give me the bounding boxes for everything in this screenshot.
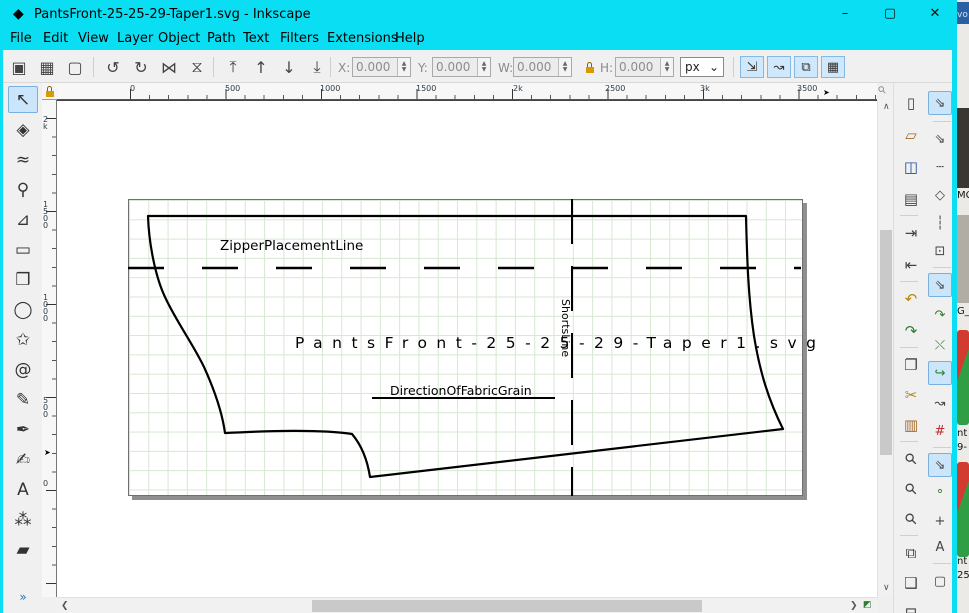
- move-patterns-toggle[interactable]: ▦: [821, 56, 845, 78]
- separator: [93, 57, 94, 77]
- h-spinner[interactable]: ▲▼: [660, 58, 673, 76]
- zoom-page-button[interactable]: ⚲: [893, 501, 928, 536]
- h-ruler-label: 500: [225, 84, 240, 93]
- snap-cusp-nodes-toggle[interactable]: ↪: [928, 361, 952, 385]
- pencil-tool[interactable]: ✎: [8, 386, 38, 413]
- separator: [900, 347, 918, 348]
- h-ruler-label: 2k: [513, 84, 523, 93]
- desktop-icon-label: nt: [957, 556, 967, 567]
- menu-layer[interactable]: Layer: [117, 31, 153, 46]
- v-ruler-label: 1500: [43, 201, 51, 229]
- select-all-button[interactable]: ▣: [6, 55, 32, 79]
- menu-file[interactable]: File: [10, 31, 32, 46]
- inkscape-logo-icon: ◆: [13, 6, 24, 22]
- lower-to-bottom-button[interactable]: ⤓: [304, 55, 330, 79]
- desktop-icon-label: G_: [957, 306, 969, 317]
- desktop-icon-label: MC: [957, 190, 969, 201]
- h-field[interactable]: 0.000 ▲▼: [615, 57, 674, 77]
- separator: [900, 281, 918, 282]
- node-tool[interactable]: ◈: [8, 116, 38, 143]
- snap-bbox-centers-toggle[interactable]: ⊡: [928, 239, 952, 263]
- flip-horizontal-button[interactable]: ⋈: [156, 55, 182, 79]
- h-ruler-label: 0: [130, 84, 135, 93]
- snap-text-baselines-toggle[interactable]: A: [928, 535, 952, 559]
- vertical-scrollbar[interactable]: ∧ ∨: [877, 100, 893, 597]
- w-label: W:: [498, 61, 513, 75]
- desktop-thumbnail: [957, 215, 969, 303]
- horizontal-scrollbar[interactable]: ❮ ❯ ◩: [57, 597, 877, 613]
- h-ruler-label: 1500: [416, 84, 436, 93]
- separator: [933, 267, 951, 268]
- menu-object[interactable]: Object: [158, 31, 200, 46]
- unit-select[interactable]: px ⌄: [680, 57, 724, 77]
- x-label: X:: [338, 61, 350, 75]
- h-label: H:: [600, 61, 613, 75]
- vertical-ruler[interactable]: 2k 1500 1000 500 0 ➤: [42, 100, 57, 597]
- snap-bbox-edges-toggle[interactable]: ┄: [928, 155, 952, 179]
- unlink-clone-button[interactable]: ⊟: [898, 601, 924, 613]
- move-gradients-toggle[interactable]: ⧉: [794, 56, 818, 78]
- minimize-button[interactable]: –: [832, 4, 858, 24]
- menu-path[interactable]: Path: [207, 31, 236, 46]
- menu-edit[interactable]: Edit: [43, 31, 68, 46]
- cursor-position-marker: ➤: [44, 448, 51, 457]
- toolbox-more-button[interactable]: »: [8, 583, 38, 610]
- v-ruler-label: 1000: [43, 294, 51, 322]
- snap-object-centers-toggle[interactable]: °: [928, 483, 952, 507]
- duplicate-button[interactable]: ⧉: [898, 541, 924, 565]
- desktop-folder-icon: [957, 330, 969, 425]
- desktop-icon-label: 9-: [957, 442, 967, 453]
- vertical-scrollbar-thumb[interactable]: [880, 230, 892, 455]
- snap-bbox-edge-midpoints-toggle[interactable]: ┆: [928, 211, 952, 235]
- x-spinner[interactable]: ▲▼: [397, 58, 410, 76]
- desktop-thumbnail: [957, 108, 969, 188]
- rectangle-tool[interactable]: ▭: [8, 236, 38, 263]
- y-spinner[interactable]: ▲▼: [477, 58, 490, 76]
- unit-value: px: [685, 60, 700, 74]
- separator: [733, 57, 734, 77]
- cms-toggle-icon[interactable]: ◩: [863, 600, 872, 610]
- separator: [933, 447, 951, 448]
- snap-enable-toggle[interactable]: ⇘: [928, 91, 952, 115]
- maximize-button[interactable]: ▢: [877, 4, 903, 24]
- w-field[interactable]: 0.000 ▲▼: [513, 57, 572, 77]
- menu-bar: File Edit View Layer Object Path Text Fi…: [0, 28, 955, 50]
- select-all-layers-button[interactable]: ▦: [34, 55, 60, 79]
- raise-button[interactable]: ↑: [248, 55, 274, 79]
- h-ruler-label: 3k: [700, 84, 710, 93]
- tool-controls-bar: ▣ ▦ ▢ ↺ ↻ ⋈ ⧖ ⤒ ↑ ↓ ⤓ X: 0.000 ▲▼ Y: 0.0…: [0, 50, 955, 83]
- paste-button[interactable]: ▥: [898, 413, 924, 437]
- print-document-button[interactable]: ▤: [898, 187, 924, 211]
- eraser-tool[interactable]: ▰: [8, 536, 38, 563]
- text-tool[interactable]: A: [8, 476, 38, 503]
- h-ruler-label: 1000: [320, 84, 340, 93]
- drawing-canvas[interactable]: ZipperPlacementLine PantsFront-25-25-29-…: [57, 100, 877, 597]
- separator: [900, 215, 918, 216]
- y-value: 0.000: [433, 58, 477, 76]
- shorts-line-label[interactable]: ShortsLine: [559, 299, 572, 357]
- horizontal-scrollbar-thumb[interactable]: [312, 600, 702, 612]
- box3d-tool[interactable]: ❒: [8, 266, 38, 293]
- lower-button[interactable]: ↓: [276, 55, 302, 79]
- calligraphy-tool[interactable]: ✍: [8, 446, 38, 473]
- h-ruler-label: 2500: [605, 84, 625, 93]
- tweak-tool[interactable]: ≈: [8, 146, 38, 173]
- horizontal-ruler[interactable]: 0 500 1000 1500 2k 2500 3k 3500 ➤: [57, 83, 877, 100]
- toolbox: ↖ ◈ ≈ ⚲ ⊿ ▭ ❒ ◯ ✩ @ ✎ ✒ ✍ A ⁂ ▰ »: [3, 83, 42, 613]
- raise-to-top-button[interactable]: ⤒: [220, 55, 246, 79]
- zipper-placement-label[interactable]: ZipperPlacementLine: [220, 238, 363, 254]
- rotate-cw-button[interactable]: ↻: [128, 55, 154, 79]
- separator: [213, 57, 214, 77]
- separator: [330, 57, 331, 77]
- h-ruler-label: 3500: [797, 84, 817, 93]
- menu-filters[interactable]: Filters: [280, 31, 319, 46]
- separator: [933, 121, 951, 122]
- scroll-right-arrow[interactable]: ❯: [850, 601, 858, 611]
- snap-page-border-toggle[interactable]: ▢: [928, 569, 952, 593]
- chevron-down-icon: ⌄: [709, 60, 719, 74]
- snap-line-midpoints-toggle[interactable]: #: [928, 419, 952, 443]
- x-field[interactable]: 0.000 ▲▼: [352, 57, 411, 77]
- snap-path-intersections-toggle[interactable]: ⤬: [928, 333, 952, 357]
- save-document-button[interactable]: ◫: [898, 155, 924, 179]
- grain-direction-label[interactable]: DirectionOfFabricGrain: [390, 383, 532, 398]
- commands-bar: ▯ ▱ ◫ ▤ ⇥ ⇤ ↶ ↷ ❐ ✂ ▥ ⚲ ⚲ ⚲ ⧉ ❑ ⊟ »: [893, 83, 927, 613]
- snap-other-points-toggle[interactable]: ⇘: [928, 453, 952, 477]
- undo-button[interactable]: ↶: [898, 287, 924, 311]
- v-ruler-label: 2k: [43, 116, 51, 130]
- snap-nodes-paths-toggle[interactable]: ⇘: [928, 273, 952, 297]
- desktop-icon-label: 25: [957, 570, 969, 581]
- y-field[interactable]: 0.000 ▲▼: [432, 57, 491, 77]
- scale-stroke-toggle[interactable]: ⇲: [740, 56, 764, 78]
- x-value: 0.000: [353, 58, 397, 76]
- redo-button[interactable]: ↷: [898, 319, 924, 343]
- clone-button[interactable]: ❑: [898, 571, 924, 595]
- deselect-button[interactable]: ▢: [62, 55, 88, 79]
- flip-vertical-button[interactable]: ⧖: [184, 55, 210, 79]
- scale-corners-toggle[interactable]: ↝: [767, 56, 791, 78]
- menu-text[interactable]: Text: [243, 31, 269, 46]
- separator: [900, 441, 918, 442]
- background-desktop-sliver: vo MC G_ nt 9- nt 25: [957, 0, 969, 613]
- zoom-tool[interactable]: ⚲: [8, 176, 38, 203]
- v-ruler-label: 500: [43, 397, 51, 418]
- open-document-button[interactable]: ▱: [898, 123, 924, 147]
- title-bar: ◆ PantsFront-25-25-29-Taper1.svg - Inksc…: [0, 0, 955, 28]
- import-image-button[interactable]: ⇥: [898, 221, 924, 245]
- background-window-titlebar: vo: [957, 2, 969, 24]
- snap-bbox-corners-toggle[interactable]: ◇: [928, 183, 952, 207]
- selector-tool[interactable]: ↖: [8, 86, 38, 113]
- new-document-button[interactable]: ▯: [898, 91, 924, 115]
- copy-button[interactable]: ❐: [898, 353, 924, 377]
- pen-tool[interactable]: ✒: [8, 416, 38, 443]
- ruler-lock-corner[interactable]: [42, 83, 57, 100]
- w-value: 0.000: [514, 58, 558, 76]
- pants-pattern-drawing[interactable]: ZipperPlacementLine PantsFront-25-25-29-…: [57, 101, 877, 598]
- scroll-left-arrow[interactable]: ❮: [61, 601, 69, 611]
- star-tool[interactable]: ✩: [8, 326, 38, 353]
- spiral-tool[interactable]: @: [8, 356, 38, 383]
- spray-tool[interactable]: ⁂: [8, 506, 38, 533]
- desktop-folder-icon: [957, 462, 969, 557]
- cursor-position-marker: ➤: [823, 88, 830, 97]
- snap-to-paths-toggle[interactable]: ↷: [928, 303, 952, 327]
- h-value: 0.000: [616, 58, 660, 76]
- snap-controls-bar: ⇘ ⇘ ┄ ◇ ┆ ⊡ ⇘ ↷ ⤬ ↪ ↝ # ⇘ ° + A ▢ »: [927, 83, 953, 613]
- cut-button[interactable]: ✂: [898, 383, 924, 407]
- close-button[interactable]: ✕: [922, 4, 948, 24]
- snap-bounding-box-toggle[interactable]: ⇘: [928, 127, 952, 151]
- menu-view[interactable]: View: [78, 31, 109, 46]
- measure-tool[interactable]: ⊿: [8, 206, 38, 233]
- corner-zoom-icon[interactable]: ⚲: [876, 84, 889, 97]
- snap-smooth-nodes-toggle[interactable]: ↝: [928, 391, 952, 415]
- y-label: Y:: [418, 61, 428, 75]
- menu-extensions[interactable]: Extensions: [327, 31, 398, 46]
- separator: [900, 535, 918, 536]
- menu-help[interactable]: Help: [395, 31, 425, 46]
- separator: [933, 563, 951, 564]
- window-title: PantsFront-25-25-29-Taper1.svg - Inkscap…: [34, 7, 311, 22]
- snap-rotation-centers-toggle[interactable]: +: [928, 509, 952, 533]
- v-ruler-label: 0: [43, 480, 51, 487]
- scroll-up-arrow[interactable]: ∧: [883, 102, 890, 112]
- export-image-button[interactable]: ⇤: [898, 253, 924, 277]
- w-spinner[interactable]: ▲▼: [558, 58, 571, 76]
- ellipse-tool[interactable]: ◯: [8, 296, 38, 323]
- scrollbar-corner: [877, 597, 893, 613]
- scroll-down-arrow[interactable]: ∨: [883, 583, 890, 593]
- rotate-ccw-button[interactable]: ↺: [100, 55, 126, 79]
- desktop-icon-label: nt: [957, 428, 967, 439]
